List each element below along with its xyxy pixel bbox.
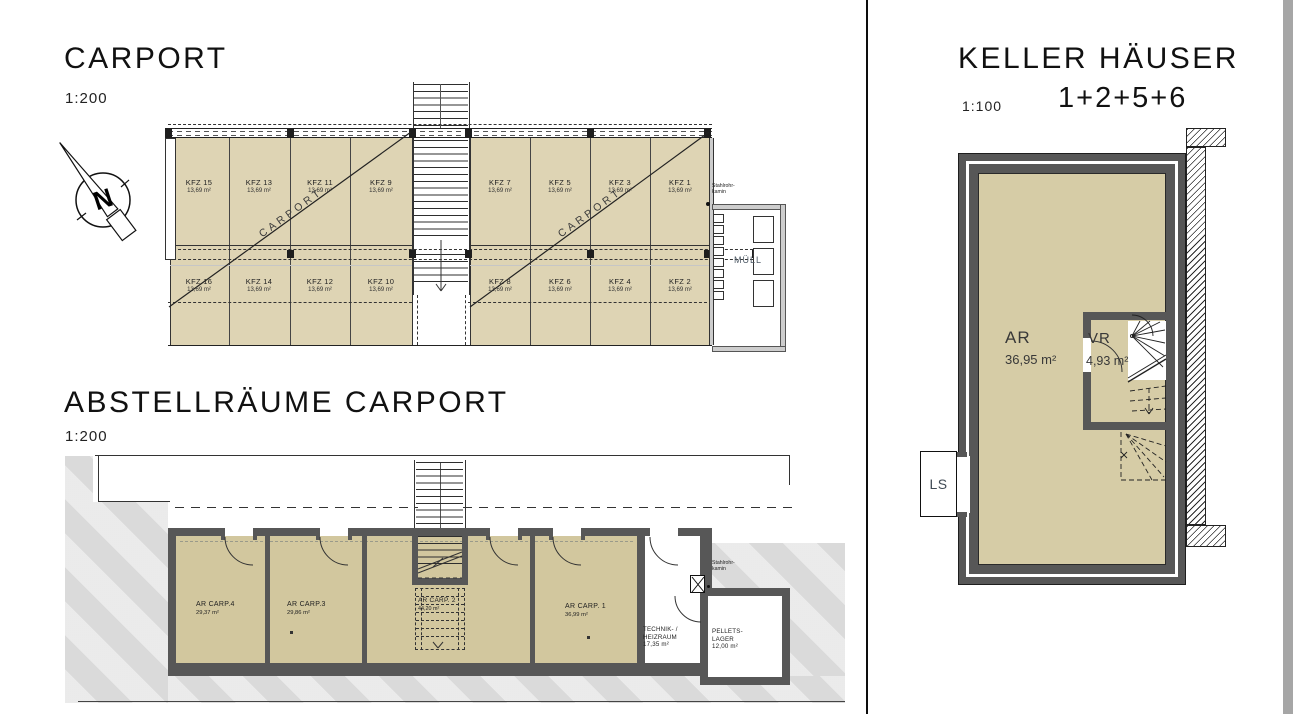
keller-vr-name: VR <box>1088 330 1111 347</box>
keller-scale: 1:100 <box>962 98 1002 114</box>
abstell-slab-edge <box>95 455 790 456</box>
stall-id: KFZ 2 <box>650 277 710 286</box>
keller-houses: 1+2+5+6 <box>1058 82 1187 115</box>
room-name: AR CARP.3 <box>287 600 377 609</box>
door-jamb <box>549 528 553 540</box>
stair-dashed-tread <box>416 628 464 629</box>
abstell-slab-edge-right <box>789 455 790 485</box>
stall-divider <box>290 138 291 345</box>
abstell-roof-dashed <box>175 507 793 508</box>
stall-area: 13,69 m² <box>530 187 590 195</box>
stall-row-line <box>170 265 412 266</box>
stair-treads-upper <box>414 84 468 126</box>
room-label: AR CARP.4 29,37 m² <box>196 600 286 617</box>
stall-label: KFZ 14 13,69 m² <box>229 277 289 294</box>
block-edge <box>470 138 471 345</box>
muell-wall-top <box>712 204 786 210</box>
pellets-line2: LAGER <box>712 636 778 644</box>
compass-north-label: N <box>84 180 122 219</box>
stall-divider <box>650 138 651 345</box>
stair-rail-left <box>414 460 415 528</box>
stall-divider <box>350 138 351 345</box>
technik-line1: TECHNIK- / <box>643 626 705 634</box>
stall-id: KFZ 10 <box>351 277 411 286</box>
ls-jamb <box>957 512 967 517</box>
page-edge-strip <box>1283 0 1293 714</box>
block-edge <box>412 138 413 345</box>
vr-wall-top <box>1083 312 1166 320</box>
abstell-title: ABSTELLRÄUME CARPORT <box>64 386 509 420</box>
beam-post <box>465 128 472 138</box>
door-jamb <box>316 528 320 540</box>
stair-treads-inner <box>418 536 462 570</box>
abstell-inner-dashed <box>180 541 633 542</box>
stall-label: KFZ 12 13,69 m² <box>290 277 350 294</box>
stall-label: KFZ 7 13,69 m² <box>470 178 530 195</box>
door-gap <box>225 528 253 536</box>
earth-hatch-tab-top <box>1186 128 1226 147</box>
stall-bottom-dashed <box>468 302 712 303</box>
row-separator <box>470 245 710 246</box>
stall-divider <box>229 138 230 345</box>
kamin-line2: kamin <box>712 566 735 572</box>
kamin-label: Stahlrohr- kamin <box>712 183 735 195</box>
door-gap <box>490 528 518 536</box>
stall-divider <box>530 138 531 345</box>
beam-post <box>587 250 594 258</box>
stall-area: 13,69 m² <box>351 187 411 195</box>
room-label: AR CARP. 1 36,99 m² <box>565 602 655 619</box>
stall-area: 13,69 m² <box>470 187 530 195</box>
stall-label: KFZ 2 13,69 m² <box>650 277 710 294</box>
stall-id: KFZ 14 <box>229 277 289 286</box>
keller-ar-name: AR <box>1005 328 1031 348</box>
door-jamb <box>581 528 585 540</box>
terrain-bottom-line <box>78 701 845 702</box>
earth-hatch-tab-bottom <box>1186 525 1226 547</box>
sheet-divider <box>866 0 868 714</box>
light-shaft-label: LS <box>929 476 947 492</box>
kamin-dot <box>706 202 710 206</box>
muell-bin-large <box>753 280 774 307</box>
stall-label: KFZ 8 13,69 m² <box>470 277 530 294</box>
stall-label: KFZ 4 13,69 m² <box>590 277 650 294</box>
roof-overhang-dashed <box>168 124 712 125</box>
muell-wall-bottom <box>712 346 786 352</box>
muell-wall-right <box>780 204 786 352</box>
stall-id: KFZ 9 <box>351 178 411 187</box>
stair-dashed-tread <box>416 636 464 637</box>
room-area: 36,99 m² <box>565 611 655 619</box>
room-area: 29,86 m² <box>287 609 377 617</box>
muell-bin-small <box>713 225 724 234</box>
door-gap <box>650 528 678 536</box>
door-gap <box>320 528 348 536</box>
stall-area: 13,69 m² <box>169 286 229 294</box>
door-jamb <box>221 528 225 540</box>
ls-wall-opening <box>957 456 970 513</box>
stall-label: KFZ 15 13,69 m² <box>169 178 229 195</box>
room-name: AR CARP. 1 <box>565 602 655 611</box>
stall-label: KFZ 9 13,69 m² <box>351 178 411 195</box>
carport-block-left <box>170 138 412 345</box>
carport-title: CARPORT <box>64 42 228 76</box>
stall-id: KFZ 1 <box>650 178 710 187</box>
path-line-v <box>98 456 99 502</box>
muell-bin-small <box>713 269 724 278</box>
beam-post <box>587 128 594 138</box>
stall-label: KFZ 6 13,69 m² <box>530 277 590 294</box>
stair-treads-mid <box>414 140 468 236</box>
beam-post <box>465 250 472 258</box>
carport-roof-beam <box>168 128 712 138</box>
stall-divider <box>590 138 591 345</box>
shaft-wall <box>462 528 468 585</box>
stall-label: KFZ 10 13,69 m² <box>351 277 411 294</box>
room-label: AR CARP.3 29,86 m² <box>287 600 377 617</box>
beam-post <box>409 250 416 258</box>
stall-label: KFZ 5 13,69 m² <box>530 178 590 195</box>
mid-beam-dashed <box>168 249 758 250</box>
terrain-lower-left <box>65 502 168 703</box>
row-separator <box>170 245 412 246</box>
stall-id: KFZ 13 <box>229 178 289 187</box>
kamin-dot <box>707 585 710 588</box>
muell-bin-small <box>713 280 724 289</box>
door-jamb <box>518 528 522 540</box>
stall-area: 13,69 m² <box>530 286 590 294</box>
mid-beam-dashed <box>168 259 758 260</box>
stall-area: 13,69 m² <box>650 286 710 294</box>
shaft-wall-bottom <box>412 578 468 585</box>
muell-label: MÜLL <box>722 255 774 265</box>
path-line-h <box>98 501 170 502</box>
pellets-area: 12,00 m² <box>712 643 778 651</box>
beam-post <box>704 128 711 138</box>
muell-bin-small <box>713 236 724 245</box>
stall-area: 13,69 m² <box>650 187 710 195</box>
beam-post <box>409 128 416 138</box>
beam-post <box>287 250 294 258</box>
room-name: AR CARP. 2 <box>418 596 474 605</box>
door-jamb <box>486 528 490 540</box>
carport-left-wall <box>165 138 176 260</box>
stall-id: KFZ 7 <box>470 178 530 187</box>
technik-line2: HEIZRAUM <box>643 634 705 642</box>
abstell-wall-left <box>168 528 176 676</box>
keller-vr-area: 4,93 m² <box>1086 354 1128 368</box>
keller-title: KELLER HÄUSER <box>958 42 1239 76</box>
muell-bin-large <box>753 216 774 243</box>
stall-row-line <box>470 265 710 266</box>
stair-dash-left <box>417 295 418 345</box>
kamin-line2: kamin <box>712 189 735 195</box>
stall-id: KFZ 15 <box>169 178 229 187</box>
stall-label: KFZ 13 13,69 m² <box>229 178 289 195</box>
stair-dash-right <box>465 295 466 345</box>
technik-area: 17,35 m² <box>643 641 705 649</box>
stall-id: KFZ 16 <box>169 277 229 286</box>
stall-area: 13,69 m² <box>351 286 411 294</box>
technik-label: TECHNIK- / HEIZRAUM 17,35 m² <box>643 626 705 649</box>
door-gap <box>553 528 581 536</box>
stair-rail-right <box>465 460 466 528</box>
stall-area: 13,69 m² <box>590 286 650 294</box>
stall-id: KFZ 8 <box>470 277 530 286</box>
light-shaft-box: LS <box>920 451 957 517</box>
beam-post <box>287 128 294 138</box>
beam-post <box>165 128 172 138</box>
stair-treads-upper <box>416 462 463 526</box>
stall-id: KFZ 5 <box>530 178 590 187</box>
stall-area: 13,69 m² <box>229 187 289 195</box>
stall-area: 13,69 m² <box>169 187 229 195</box>
stall-id: KFZ 12 <box>290 277 350 286</box>
pellets-line1: PELLETS- <box>712 628 778 636</box>
stall-id: KFZ 4 <box>590 277 650 286</box>
earth-hatch-band <box>1186 147 1206 525</box>
stall-area: 13,69 m² <box>229 286 289 294</box>
stall-area: 13,69 m² <box>290 286 350 294</box>
room-area: 44,20 m² <box>418 605 474 613</box>
room-dot <box>290 631 293 634</box>
keller-stair-area <box>1128 321 1166 380</box>
stall-label: KFZ 1 13,69 m² <box>650 178 710 195</box>
carport-scale: 1:200 <box>65 90 108 107</box>
floor-plan-sheet: LS <box>0 0 1293 714</box>
kamin-label: Stahlrohr- kamin <box>712 560 735 572</box>
ls-jamb <box>957 452 967 457</box>
keller-ar-area: 36,95 m² <box>1005 352 1056 367</box>
pellets-label: PELLETS- LAGER 12,00 m² <box>712 628 778 651</box>
carport-bottom-edge <box>168 345 712 346</box>
stall-area: 13,69 m² <box>470 286 530 294</box>
room-divider <box>530 536 535 663</box>
abstell-scale: 1:200 <box>65 428 108 445</box>
room-label: AR CARP. 2 44,20 m² <box>418 596 474 613</box>
kamin-box <box>690 575 705 593</box>
abstell-wall-bottom <box>168 663 712 676</box>
stall-label: KFZ 16 13,69 m² <box>169 277 229 294</box>
stair-dashed-tread <box>416 620 464 621</box>
door-jamb <box>253 528 257 540</box>
muell-bin-small <box>713 291 724 300</box>
vr-wall-bottom <box>1083 422 1166 430</box>
room-name: AR CARP.4 <box>196 600 286 609</box>
stall-bottom-dashed <box>168 302 412 303</box>
room-area: 29,37 m² <box>196 609 286 617</box>
room-dot <box>587 636 590 639</box>
stall-id: KFZ 6 <box>530 277 590 286</box>
stair-center-divider <box>440 84 441 128</box>
door-jamb <box>348 528 352 540</box>
muell-bin-small <box>713 214 724 223</box>
